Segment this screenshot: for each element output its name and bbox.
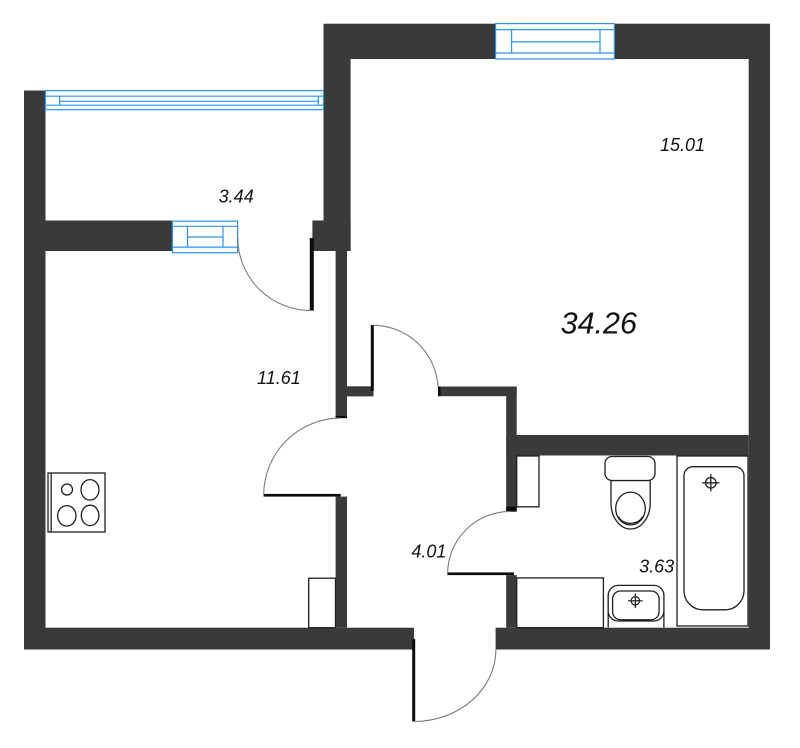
svg-text:4.01: 4.01 (411, 542, 446, 562)
svg-text:3.44: 3.44 (219, 187, 254, 207)
svg-text:34.26: 34.26 (561, 306, 637, 340)
svg-text:15.01: 15.01 (660, 135, 705, 155)
svg-text:11.61: 11.61 (257, 368, 301, 388)
svg-text:3.63: 3.63 (639, 557, 674, 577)
